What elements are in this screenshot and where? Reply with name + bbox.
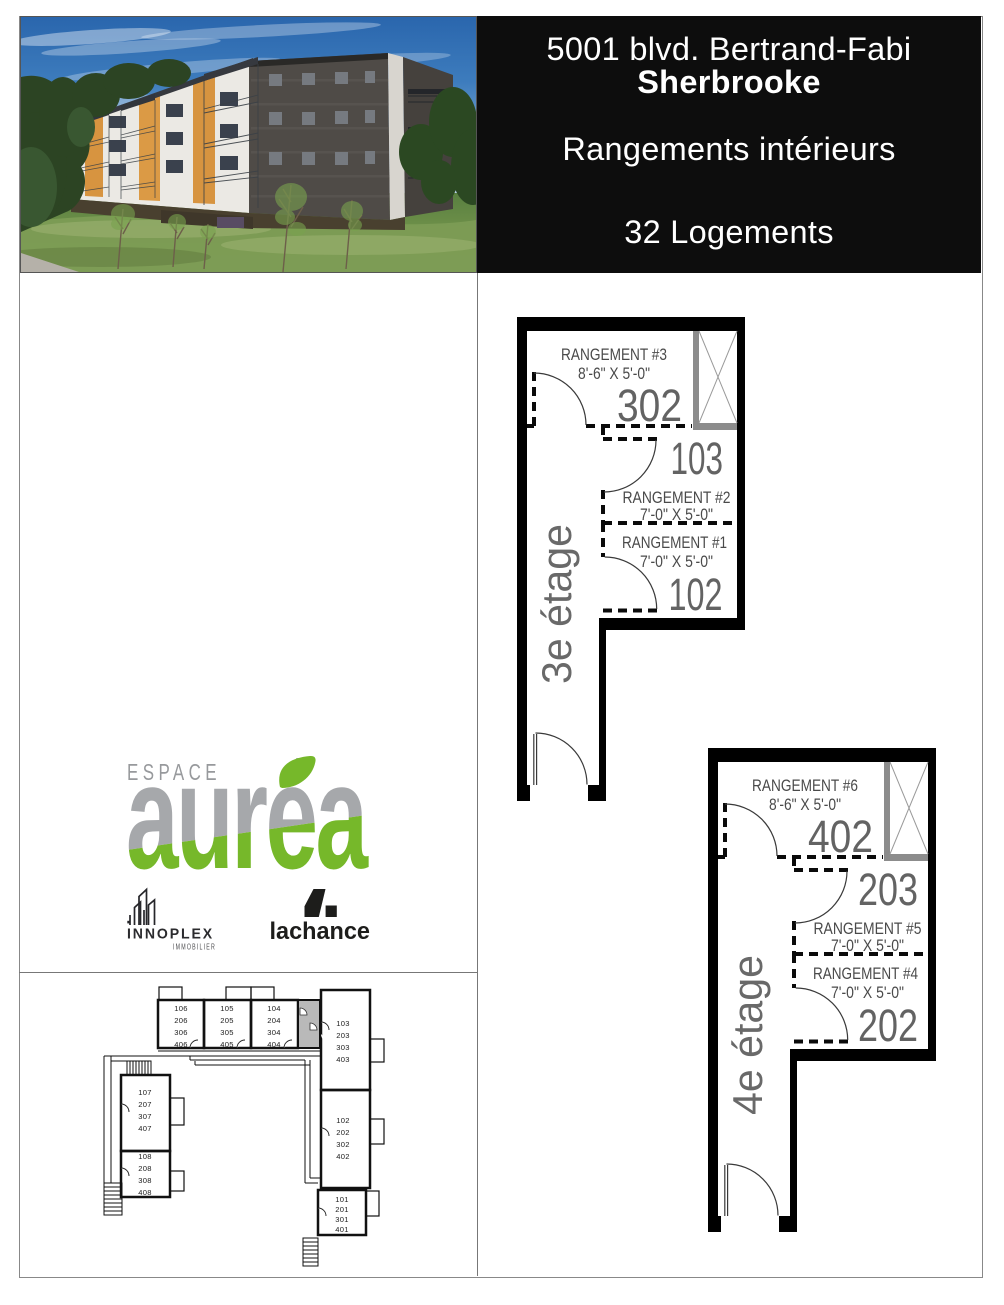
svg-text:302: 302 xyxy=(336,1140,350,1149)
svg-text:308: 308 xyxy=(138,1176,152,1185)
svg-text:202: 202 xyxy=(336,1128,350,1137)
svg-text:102: 102 xyxy=(336,1116,350,1125)
svg-text:106: 106 xyxy=(174,1004,188,1013)
svg-text:407: 407 xyxy=(138,1124,152,1133)
svg-text:301: 301 xyxy=(335,1215,349,1224)
svg-text:104: 104 xyxy=(267,1004,281,1013)
svg-text:202: 202 xyxy=(858,1000,918,1051)
svg-text:402: 402 xyxy=(808,811,873,862)
svg-text:405: 405 xyxy=(220,1040,234,1049)
svg-text:RANGEMENT #3: RANGEMENT #3 xyxy=(561,345,667,364)
svg-text:3e étage: 3e étage xyxy=(533,524,580,684)
svg-text:302: 302 xyxy=(617,380,682,431)
svg-text:305: 305 xyxy=(220,1028,234,1037)
svg-text:402: 402 xyxy=(336,1152,350,1161)
svg-text:403: 403 xyxy=(336,1055,350,1064)
svg-text:404: 404 xyxy=(267,1040,281,1049)
svg-text:7'-0" X 5'-0": 7'-0" X 5'-0" xyxy=(640,505,713,524)
svg-text:107: 107 xyxy=(138,1088,152,1097)
svg-text:103: 103 xyxy=(336,1019,350,1028)
svg-text:RANGEMENT #4: RANGEMENT #4 xyxy=(813,964,918,983)
svg-text:205: 205 xyxy=(220,1016,234,1025)
svg-text:4e étage: 4e étage xyxy=(724,955,771,1115)
svg-text:7'-0" X 5'-0": 7'-0" X 5'-0" xyxy=(831,936,904,955)
svg-text:105: 105 xyxy=(220,1004,234,1013)
svg-text:304: 304 xyxy=(267,1028,281,1037)
svg-text:RANGEMENT #6: RANGEMENT #6 xyxy=(752,776,858,795)
svg-text:401: 401 xyxy=(335,1225,349,1234)
svg-text:307: 307 xyxy=(138,1112,152,1121)
svg-text:201: 201 xyxy=(335,1205,349,1214)
svg-text:206: 206 xyxy=(174,1016,188,1025)
svg-text:102: 102 xyxy=(669,569,723,620)
svg-text:208: 208 xyxy=(138,1164,152,1173)
svg-text:203: 203 xyxy=(858,864,918,915)
svg-text:303: 303 xyxy=(336,1043,350,1052)
svg-text:207: 207 xyxy=(138,1100,152,1109)
svg-text:103: 103 xyxy=(671,433,724,484)
svg-text:306: 306 xyxy=(174,1028,188,1037)
svg-text:204: 204 xyxy=(267,1016,281,1025)
svg-text:101: 101 xyxy=(335,1195,349,1204)
svg-text:408: 408 xyxy=(138,1188,152,1197)
svg-text:108: 108 xyxy=(138,1152,152,1161)
svg-text:406: 406 xyxy=(174,1040,188,1049)
svg-text:RANGEMENT #1: RANGEMENT #1 xyxy=(622,533,727,552)
svg-text:203: 203 xyxy=(336,1031,350,1040)
